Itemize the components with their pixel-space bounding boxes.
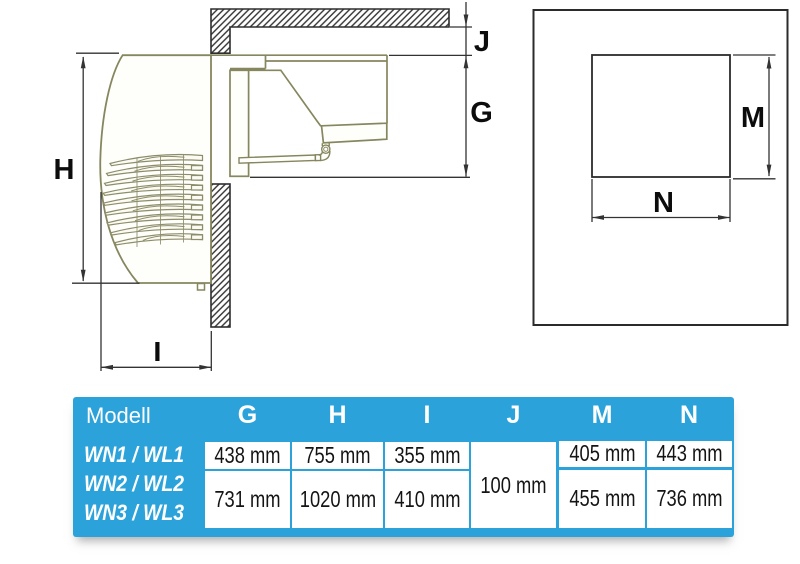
svg-text:G: G	[470, 97, 493, 129]
svg-text:J: J	[474, 26, 490, 58]
svg-text:H: H	[54, 154, 75, 186]
svg-text:N: N	[653, 187, 674, 219]
svg-text:M: M	[741, 102, 765, 134]
